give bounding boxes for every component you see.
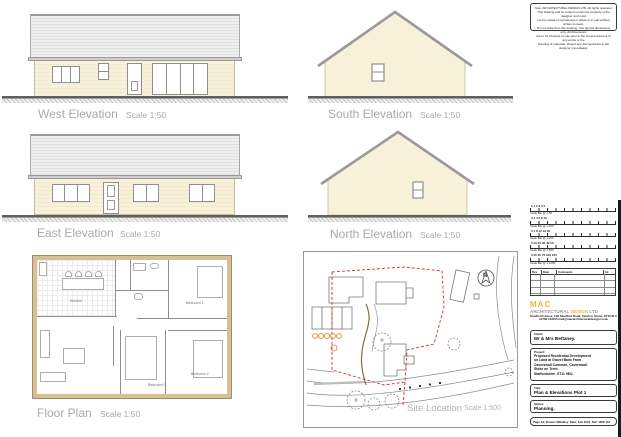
stool — [95, 271, 102, 277]
plan-wall — [168, 260, 169, 319]
east-elevation-label: East Elevation — [37, 226, 114, 240]
rev-col-header: Date — [542, 270, 557, 274]
west-roof — [30, 14, 240, 58]
site-location-scale: Scale 1:500 — [464, 405, 501, 412]
bed-3 — [125, 336, 157, 380]
west-patio-window — [152, 63, 208, 95]
plan-wall — [137, 318, 227, 319]
coffee-table — [63, 348, 85, 364]
west-elevation-label: West Elevation — [38, 107, 118, 121]
north-ground-hatch — [308, 217, 511, 222]
note-line: not be copied or reproduced in whole or … — [534, 18, 613, 26]
east-window-1 — [52, 184, 90, 202]
floor-plan-label: Floor Plan — [37, 406, 92, 420]
west-window-1 — [52, 66, 80, 83]
site-driveway — [361, 304, 369, 385]
title-box: Title: Plan & Elevations Plot 1 — [530, 384, 617, 397]
wc-fixture — [150, 263, 159, 269]
project-line: Staffordshire. ST11 9EU. — [534, 372, 613, 377]
site-buildings — [312, 270, 479, 376]
status-box: Status: Planning. — [530, 400, 617, 413]
room-label-bedroom-1: Bedroom 1 — [186, 301, 204, 305]
notes-box: Note: ARCHITECTURAL DESIGN LTD. All righ… — [530, 3, 617, 31]
rev-col-line — [554, 274, 555, 295]
wc-fixture — [134, 293, 143, 300]
plan-wall — [115, 290, 168, 291]
plan-wall — [120, 330, 121, 394]
stool — [65, 271, 72, 277]
site-hedge — [313, 334, 342, 352]
north-gable-drawing — [300, 128, 520, 218]
scale-bars: 0 1 2 3 4 5 Scale Bar @ 1:50 0 2 4 6 8 1… — [530, 205, 616, 265]
south-elevation-label: South Elevation — [328, 107, 412, 121]
tree-centers — [354, 338, 384, 402]
room-label-kitchen: Kitchen — [70, 299, 82, 303]
room-label-bedroom-3: Bedroom 3 — [148, 383, 166, 387]
scale-bar-label: Scale Bar @ 1:100 — [530, 225, 616, 228]
north-marker-letter: N — [483, 273, 487, 279]
note-line: ordering of materials. Report any discre… — [534, 42, 613, 50]
plan-wall — [115, 260, 116, 317]
scale-bar: 0 4 8 12 16 20 Scale Bar @ 1:200 — [530, 230, 616, 241]
stool — [85, 271, 92, 277]
title-value: Plan & Elevations Plot 1 — [534, 390, 613, 395]
east-ground-hatch — [2, 217, 288, 222]
south-ground-hatch — [308, 98, 513, 103]
room-label-bedroom-2: Bedroom 2 — [191, 372, 209, 376]
south-gable-drawing — [300, 8, 520, 100]
south-elevation-scale: Scale 1:50 — [420, 110, 460, 120]
client-value: Mr & Mrs Bettaney. — [534, 336, 613, 341]
scale-bar-label: Scale Bar @ 1:500 — [530, 249, 616, 252]
east-elevation-scale: Scale 1:50 — [120, 229, 160, 239]
west-elevation-scale: Scale 1:50 — [126, 110, 166, 120]
west-door — [127, 63, 142, 95]
plan-wall — [130, 260, 131, 291]
bath-fixture — [133, 263, 146, 271]
footer-strip: Page A3. Drawn: MOakley. Date: Feb 2021.… — [530, 417, 617, 426]
kitchen-island — [62, 278, 104, 290]
note-line: are to be checked on site prior to the c… — [534, 34, 613, 42]
floor-plan — [33, 256, 231, 398]
plan-wall — [168, 330, 227, 331]
west-ground-hatch — [2, 98, 288, 103]
drawing-sheet: West Elevation Scale 1:50 South Elevatio… — [0, 0, 621, 437]
floor-plan-scale: Scale 1:50 — [100, 409, 140, 419]
rev-col-line — [604, 274, 605, 295]
note-line: Note: ARCHITECTURAL DESIGN LTD. All righ… — [534, 6, 613, 10]
company-logo: MAC ARCHITECTURAL DESIGN LTD Sandford Ho… — [530, 301, 617, 322]
revision-table: Rev Date Comments Int — [530, 268, 616, 296]
logo-name: MAC — [530, 301, 617, 309]
plan-wall — [113, 326, 114, 366]
east-window-3 — [189, 184, 215, 202]
logo-address-2: 01782 123456 mail@macarchitecturaldesign… — [530, 318, 617, 322]
scale-bar-label: Scale Bar @ 1:1250 — [530, 262, 616, 265]
project-box: Project: Proposed Residential Developmen… — [530, 348, 617, 381]
status-value: Planning. — [534, 406, 613, 411]
site-trees — [347, 333, 513, 410]
scale-bar: 0 2 4 6 8 10 Scale Bar @ 1:100 — [530, 217, 616, 228]
scale-bar: 0 10 20 30 40 50 Scale Bar @ 1:500 — [530, 242, 616, 253]
client-box: Client: Mr & Mrs Bettaney. — [530, 330, 617, 345]
sofa — [40, 330, 50, 358]
rev-col-line — [540, 274, 541, 295]
site-location-panel: N Site Location Scale 1:500 — [303, 251, 518, 428]
rev-col-header: Int — [604, 270, 615, 274]
plan-wall — [37, 316, 117, 317]
scale-bar-label: Scale Bar @ 1:50 — [530, 212, 616, 215]
east-door — [103, 182, 119, 214]
stool — [75, 271, 82, 277]
sofa — [40, 372, 66, 382]
site-location-label: Site Location — [407, 403, 462, 414]
north-elevation-label: North Elevation — [330, 227, 412, 241]
rev-col-header: Comments — [557, 270, 604, 274]
west-window-2 — [98, 63, 109, 80]
scale-bar: 0 1 2 3 4 5 Scale Bar @ 1:50 — [530, 205, 616, 216]
east-window-2 — [133, 184, 159, 202]
rev-row — [531, 294, 615, 299]
bed-1 — [197, 266, 223, 298]
scale-bar: 0 25 50 75 100 125 Scale Bar @ 1:1250 — [530, 254, 616, 265]
kitchen-unit — [39, 262, 47, 276]
note-line: This drawing and its content remain the … — [534, 10, 613, 18]
north-elevation-scale: Scale 1:50 — [420, 230, 460, 240]
east-roof — [30, 134, 240, 176]
note-line: Do not scale from this drawing. Use figu… — [534, 26, 613, 34]
rev-col-header: Rev — [531, 270, 542, 274]
scale-bar-label: Scale Bar @ 1:200 — [530, 237, 616, 240]
